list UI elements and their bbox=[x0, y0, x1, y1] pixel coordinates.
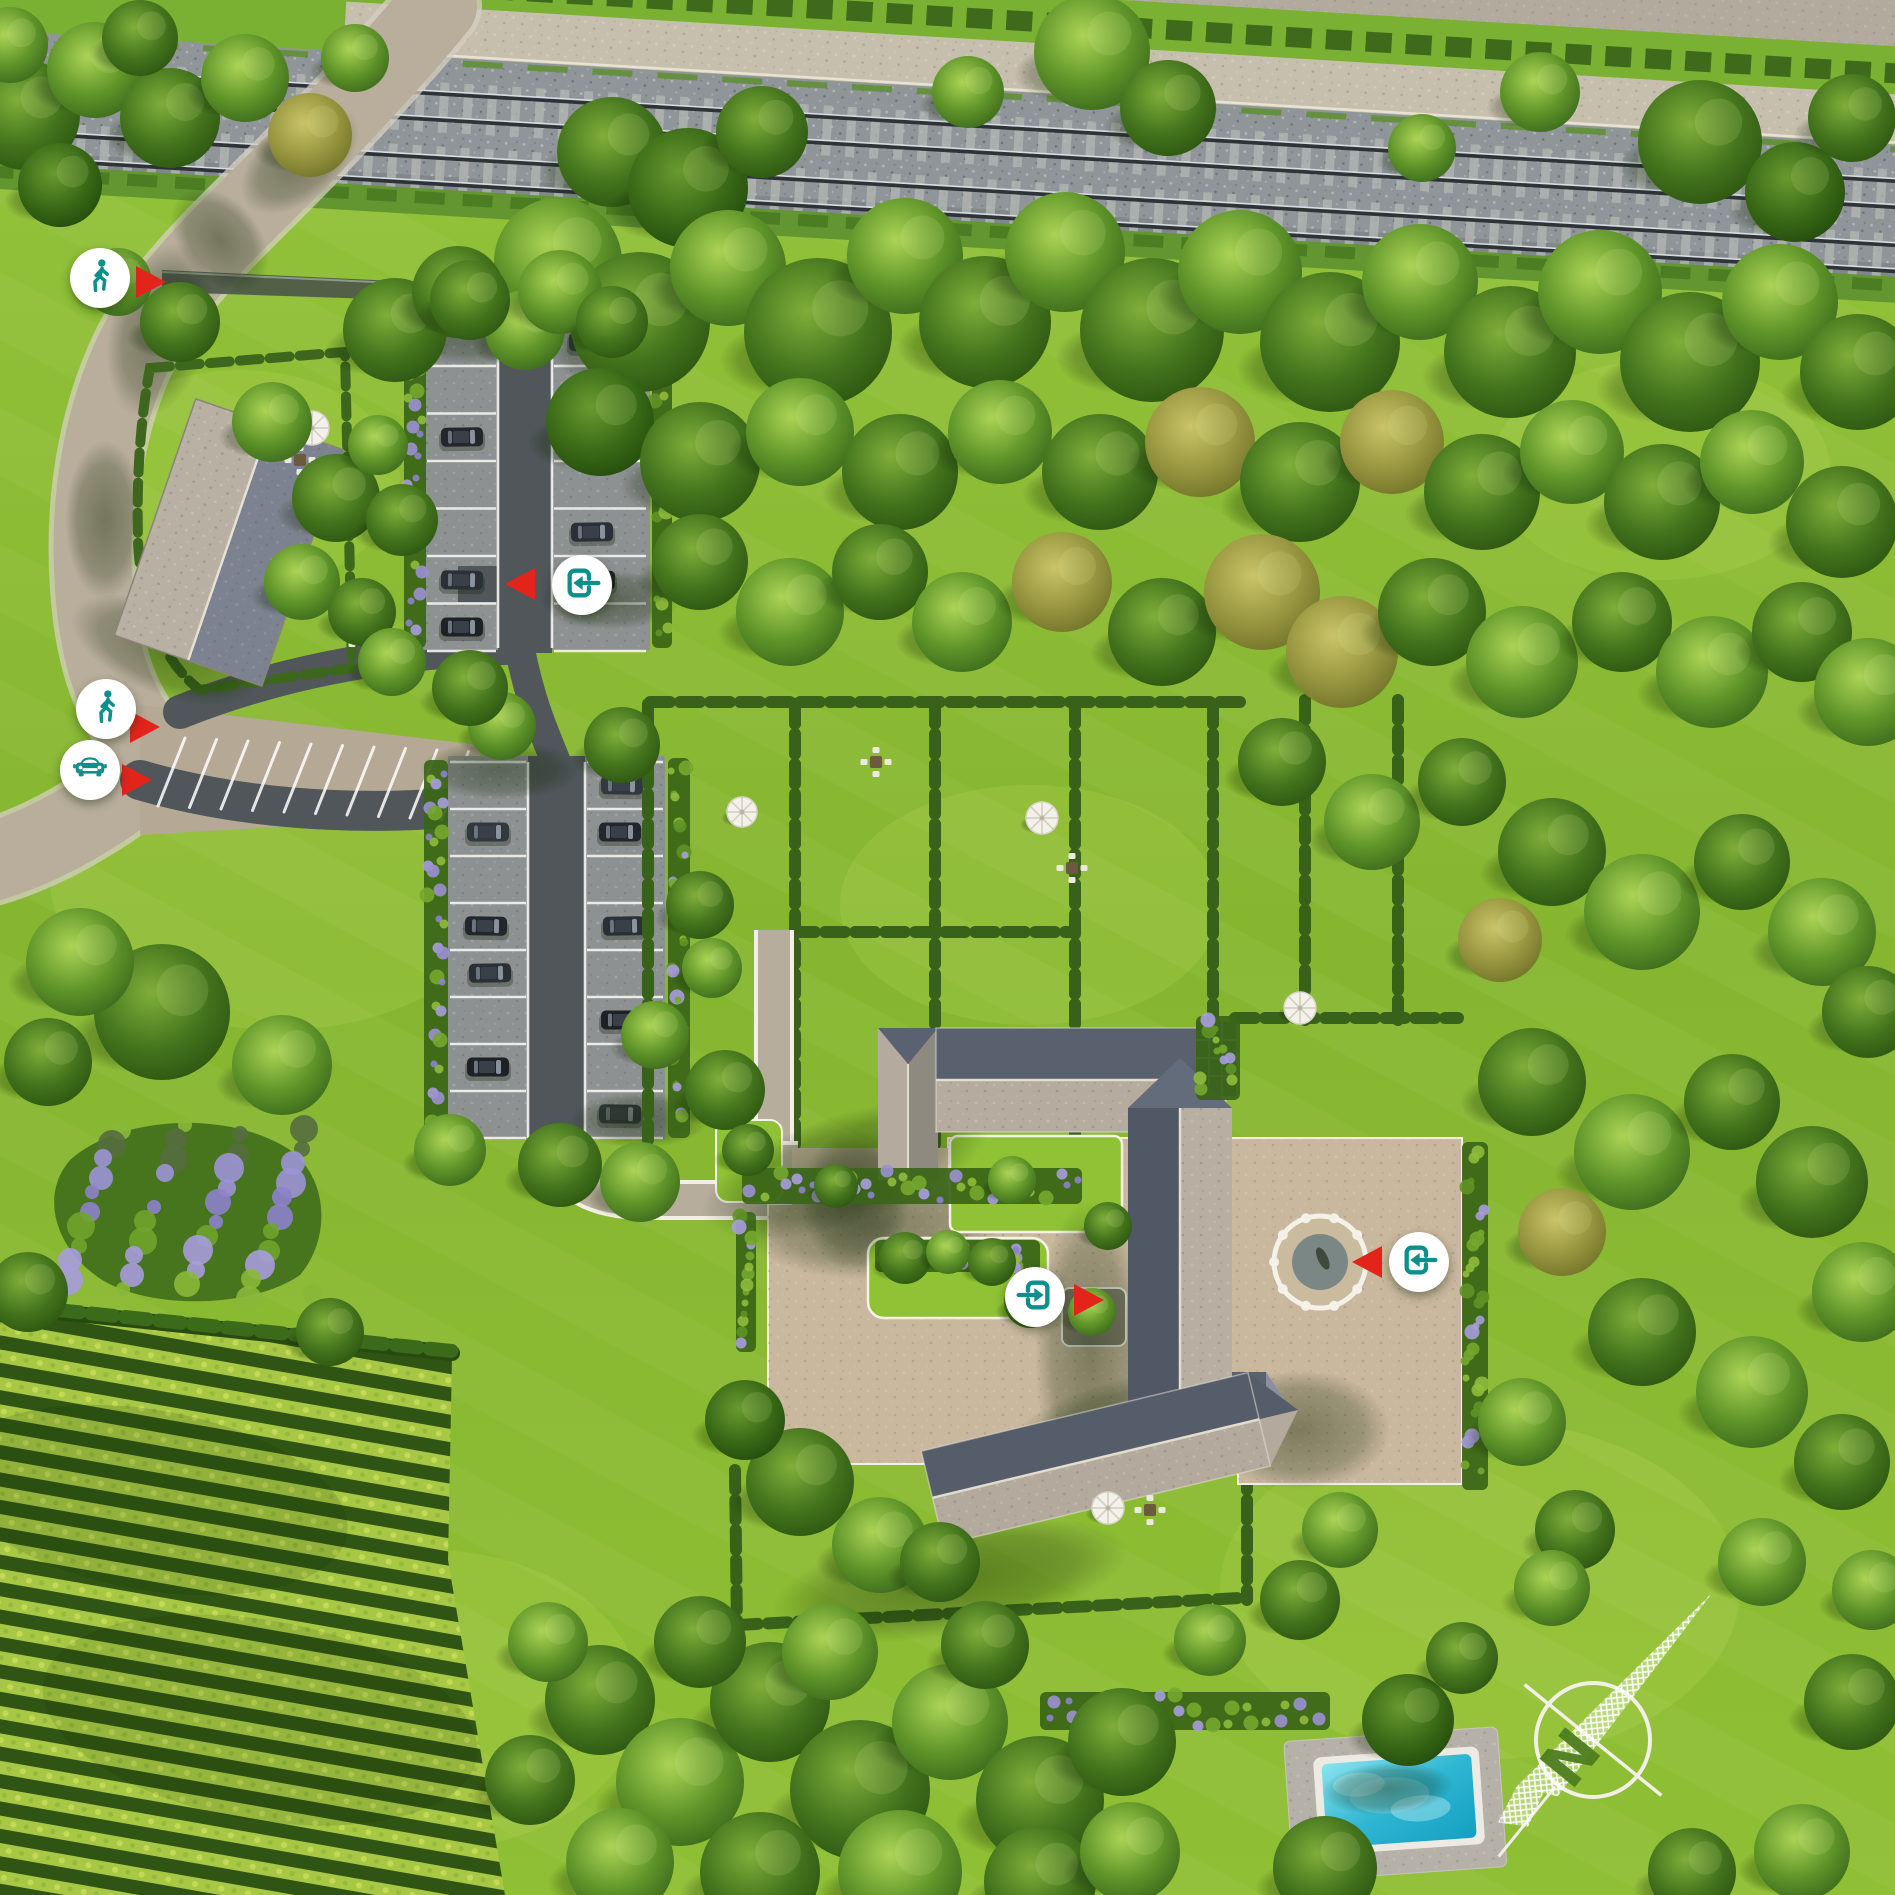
markers-layer bbox=[0, 0, 1895, 1895]
pedestrian-icon bbox=[80, 256, 120, 300]
car-icon bbox=[70, 748, 110, 792]
entrance-parking-marker[interactable] bbox=[552, 555, 612, 615]
enter-left-icon bbox=[562, 563, 602, 607]
direction-pointer bbox=[505, 568, 535, 600]
entrance-courtyard-marker[interactable] bbox=[1005, 1267, 1065, 1327]
direction-pointer bbox=[1352, 1246, 1382, 1278]
pedestrian-access-north-marker[interactable] bbox=[70, 248, 130, 308]
direction-pointer bbox=[122, 764, 152, 796]
site-plan-canvas: N bbox=[0, 0, 1895, 1895]
direction-pointer bbox=[1074, 1284, 1104, 1316]
vehicle-access-west-marker[interactable] bbox=[60, 740, 120, 800]
pedestrian-access-west-marker[interactable] bbox=[76, 679, 136, 739]
direction-pointer bbox=[136, 266, 166, 298]
entrance-east-terrace-marker[interactable] bbox=[1389, 1232, 1449, 1292]
enter-left-icon bbox=[1399, 1240, 1439, 1284]
pedestrian-icon bbox=[86, 687, 126, 731]
enter-right-icon bbox=[1015, 1275, 1055, 1319]
